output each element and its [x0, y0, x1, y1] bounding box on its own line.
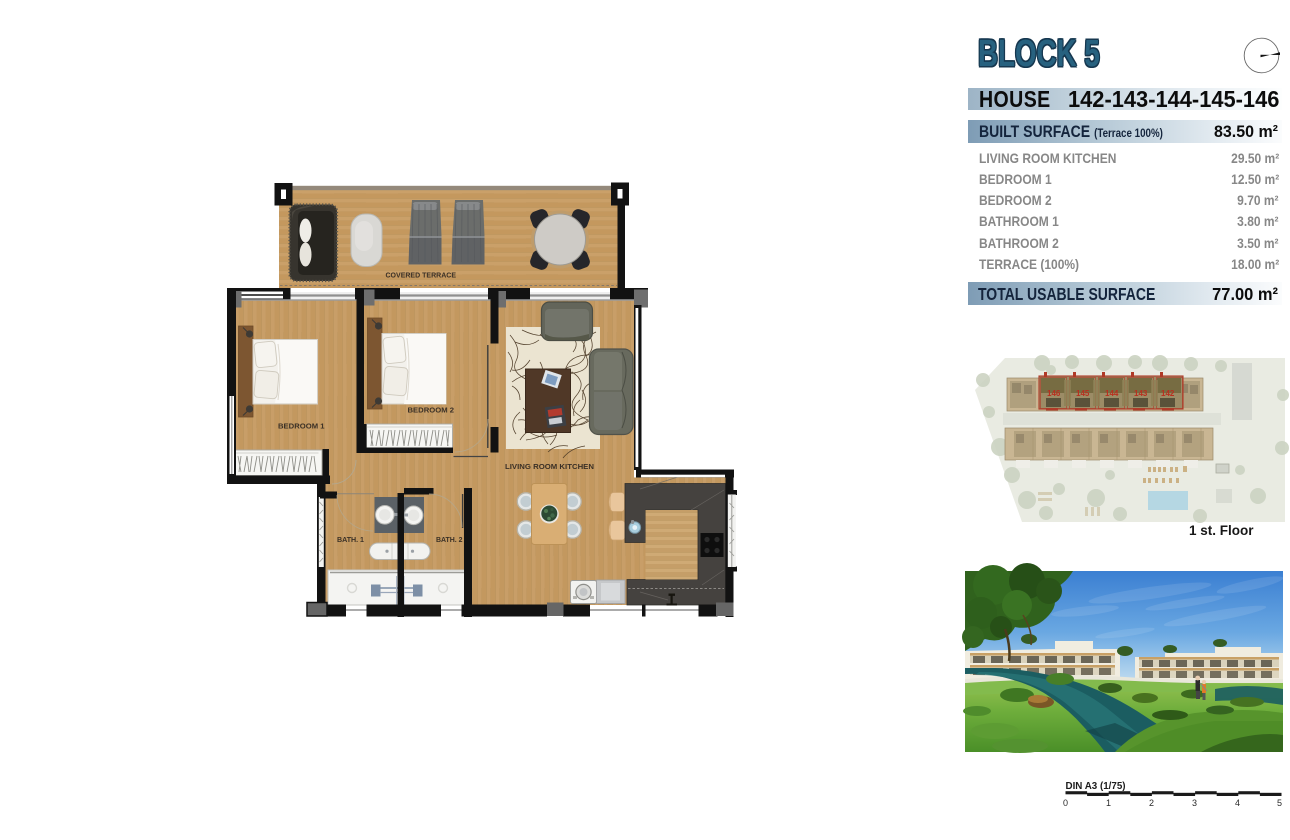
svg-text:145: 145	[1076, 389, 1090, 398]
svg-text:146: 146	[1047, 389, 1061, 398]
svg-text:142: 142	[1161, 389, 1175, 398]
svg-text:1: 1	[1106, 798, 1111, 808]
svg-text:BATH. 2: BATH. 2	[436, 535, 463, 544]
svg-text:BEDROOM 1: BEDROOM 1	[278, 422, 325, 431]
svg-text:4: 4	[1235, 798, 1240, 808]
svg-text:COVERED TERRACE: COVERED TERRACE	[386, 271, 457, 280]
svg-text:144: 144	[1105, 389, 1119, 398]
svg-text:1 st. Floor: 1 st. Floor	[1189, 523, 1254, 538]
svg-text:BATH. 1: BATH. 1	[337, 535, 364, 544]
svg-text:3: 3	[1192, 798, 1197, 808]
svg-text:5: 5	[1277, 798, 1282, 808]
svg-text:0: 0	[1063, 798, 1068, 808]
svg-text:DIN A3 (1/75): DIN A3 (1/75)	[1066, 781, 1126, 792]
svg-text:2: 2	[1149, 798, 1154, 808]
svg-text:BEDROOM 2: BEDROOM 2	[408, 406, 455, 415]
svg-text:LIVING ROOM KITCHEN: LIVING ROOM KITCHEN	[505, 462, 594, 471]
svg-text:143: 143	[1134, 389, 1148, 398]
